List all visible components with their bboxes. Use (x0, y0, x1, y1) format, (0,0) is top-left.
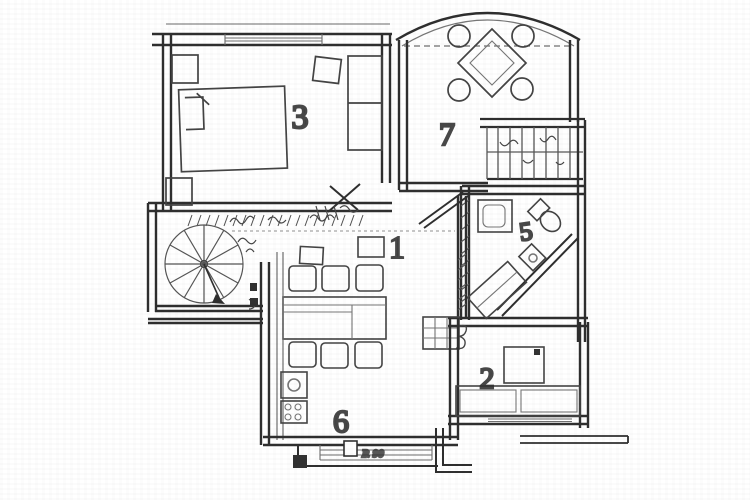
chair-symbol (512, 25, 534, 47)
floorplan-canvas: 3 7 (0, 0, 750, 500)
window-band-top (225, 34, 322, 45)
door-hinge-mark (250, 283, 257, 291)
right-exterior-wall (578, 120, 585, 342)
dining-table-symbol (283, 297, 386, 339)
chair-symbol (448, 79, 470, 101)
chair-symbol (289, 266, 316, 291)
kitchen-bottom-wall (263, 437, 458, 445)
room2-bottom-wall (448, 416, 588, 424)
room3-top-wall (152, 34, 392, 45)
floorplan-page: 3 7 (0, 0, 750, 500)
staircase (480, 119, 585, 179)
scanned-drawing: 3 7 (0, 0, 750, 500)
room7-right-wall (570, 40, 578, 122)
stove-symbol (281, 401, 307, 423)
exterior-path-lines (520, 436, 628, 443)
door-leaf-symbol (344, 441, 357, 456)
chair-symbol (289, 342, 316, 367)
room-5-bathroom: 5 (448, 186, 588, 326)
room-label-1: 1 (389, 229, 405, 265)
room-label-2: 2 (480, 362, 495, 395)
room-label-6: 6 (333, 403, 349, 439)
dimension-note: P. 90 (362, 448, 384, 460)
room2-left-wall (450, 318, 458, 440)
chair-symbol (355, 342, 382, 368)
tower-bottom-wall (148, 306, 263, 323)
bath-bottom-wall (448, 318, 588, 326)
entry-steps (436, 428, 472, 472)
door-hinge-mark (250, 298, 258, 306)
chair-symbol (356, 265, 383, 291)
door-swing-cross (328, 184, 360, 212)
room-3-bedroom: 3 (148, 24, 392, 212)
stairs-treads (487, 127, 583, 179)
chair-symbol (511, 78, 533, 100)
side-table-symbol (313, 57, 342, 84)
room7-left-wall (399, 40, 407, 190)
round-table-inner (470, 41, 514, 85)
sofa-cushion (521, 390, 577, 412)
chair-symbol (448, 25, 470, 47)
chair-symbol (321, 343, 348, 368)
shower-screen-diagonal (497, 234, 578, 316)
stove-burners (285, 404, 301, 420)
threshold-block (293, 455, 307, 468)
room-label-3: 3 (292, 99, 309, 136)
dining-table-detail (283, 305, 386, 339)
room3-right-wall (382, 34, 390, 183)
shelf-grid-symbol (423, 317, 459, 349)
room-label-5: 5 (517, 216, 534, 247)
room-6-kitchen: P. 90 6 (261, 252, 458, 468)
kitchen-sink-symbol (281, 372, 307, 398)
toilet-symbol (528, 199, 565, 236)
kitchen-sink-basin (288, 379, 300, 391)
side-table-symbol (358, 237, 384, 257)
round-table-symbol (458, 29, 526, 97)
chair-symbol (322, 266, 349, 291)
room-7-terrace: 7 (396, 13, 580, 191)
kitchen-partition (277, 252, 283, 440)
room-label-7: 7 (439, 116, 455, 152)
terrace-arc-wall (396, 13, 580, 40)
table-corner-mark (534, 349, 540, 355)
tower-left-wall (148, 203, 156, 312)
bidet-symbol (519, 244, 546, 271)
side-table-symbol (300, 246, 324, 264)
kitchen-exterior-wall (261, 262, 269, 445)
bed-pillow-symbol (185, 93, 210, 130)
room3-left-wall (163, 34, 171, 212)
window-band-room2 (488, 419, 572, 422)
handwritten-marks (230, 206, 358, 224)
sink-basin (483, 205, 505, 227)
stair-direction-arrow (204, 264, 220, 300)
nightstand-symbol (172, 55, 198, 83)
